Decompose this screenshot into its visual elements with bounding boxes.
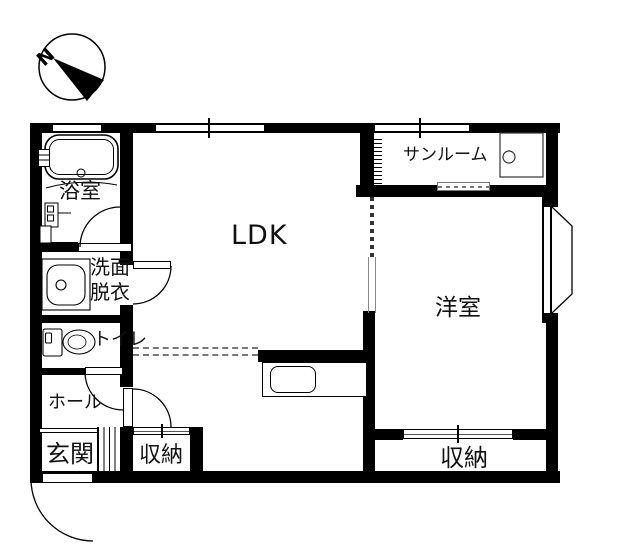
wall-bath-washroom <box>30 242 78 252</box>
entrance-door-arc <box>31 479 93 541</box>
room-label-washroom-line2: 脱衣 <box>90 282 130 303</box>
bay-window-pane <box>542 207 552 313</box>
ldk-open-boundary-dash-2 <box>133 354 258 356</box>
outer-wall-top <box>30 123 560 133</box>
room-label-sunroom: サンルーム <box>403 147 488 165</box>
bay-window-stub-bottom <box>542 313 558 323</box>
wall-left-column-c <box>120 427 133 471</box>
bath-door-arc <box>80 207 120 247</box>
compass-north-label: N <box>33 44 60 71</box>
floor-plan: N <box>0 0 640 560</box>
window-sunroom <box>374 124 470 132</box>
entrance-step-edge <box>40 428 97 433</box>
outer-wall-right-lower <box>546 313 558 483</box>
ldk-western-accordion-dotted <box>370 197 374 257</box>
room-label-ldk: LDK <box>231 222 288 250</box>
sunroom-accordion-hatch <box>374 137 382 192</box>
wall-storage-west-top-right <box>513 429 546 440</box>
ldk-open-boundary-dash-1 <box>133 347 258 349</box>
bath-door-leaf <box>78 243 132 252</box>
entrance-door-leaf <box>42 473 93 483</box>
hall-ldk-door-arc <box>133 389 171 427</box>
wall-toilet-hall <box>30 368 85 375</box>
room-label-washroom-line1: 洗面 <box>90 257 130 278</box>
outer-wall-bottom <box>30 471 560 483</box>
storage-west-slider-tick <box>457 425 459 443</box>
room-label-storage-hall: 収納 <box>139 444 183 467</box>
room-label-hall: ホール <box>48 394 102 413</box>
compass-needle-icon <box>53 58 104 101</box>
window-bath <box>52 124 102 132</box>
window-ldk-mullion <box>208 118 210 138</box>
wall-storage-hall-right <box>190 427 203 471</box>
kitchen-sink <box>270 366 316 393</box>
room-label-entrance: 玄関 <box>46 442 94 467</box>
room-label-bath: 浴室 <box>59 180 101 202</box>
compass: N <box>33 34 105 101</box>
storage-hall-slider-tick <box>161 424 163 438</box>
wall-washroom-toilet <box>30 315 133 323</box>
room-label-storage-west: 収納 <box>440 446 488 471</box>
washroom-door-leaf <box>133 261 171 269</box>
wall-kitchen <box>258 350 375 362</box>
washbasin-icon <box>42 259 90 310</box>
bay-window-stub-top <box>542 197 558 207</box>
shower-mixer-icon <box>40 203 71 243</box>
window-sunroom-mullion <box>419 118 421 138</box>
ldk-western-opening-track <box>368 257 376 313</box>
washer-pan-icon <box>500 133 543 177</box>
hall-ldk-door-leaf <box>123 388 133 427</box>
room-label-western-room: 洋室 <box>435 296 481 320</box>
sunroom-sliding-panel <box>437 182 490 191</box>
wall-storage-west-top-left <box>374 429 403 440</box>
toilet-icon <box>43 329 95 356</box>
window-ldk <box>155 124 265 132</box>
bay-window-outline <box>552 207 572 313</box>
washroom-door-arc <box>133 266 171 304</box>
outer-wall-right-upper <box>546 123 558 207</box>
toilet-door-leaf <box>85 367 123 375</box>
room-label-toilet: トイレ <box>93 331 147 350</box>
entrance-tataki-hatch <box>97 427 121 472</box>
